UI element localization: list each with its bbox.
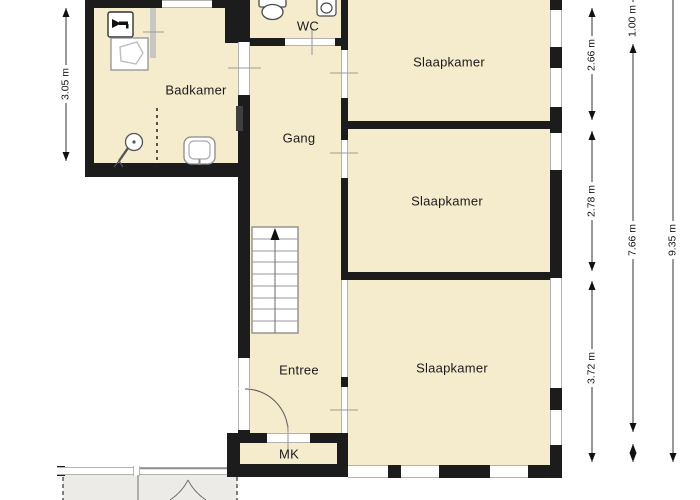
dim-label-7-66: 7.66 m — [627, 221, 640, 259]
dim-label-9-35: 9.35 m — [667, 221, 680, 259]
dim-label-1-00: 1.00 m — [627, 2, 640, 40]
dimension-arrowheads — [63, 8, 677, 462]
dim-label-left: 3.05 m — [60, 65, 73, 103]
dim-label-3-72: 3.72 m — [586, 349, 599, 387]
plan-vector-overlay — [0, 0, 700, 500]
porch-dashed-edges — [63, 477, 237, 500]
laundry-basket-icon — [111, 38, 148, 70]
dim-label-2-78: 2.78 m — [586, 182, 599, 220]
room-label-entree: Entree — [279, 363, 319, 378]
wc-washbasin-icon — [317, 0, 336, 16]
washing-machine-tap-icon — [108, 12, 133, 37]
room-label-badkamer: Badkamer — [165, 83, 226, 98]
dimension-lines — [66, 0, 673, 462]
hand-shower-icon — [114, 134, 143, 168]
toilet-icon — [259, 0, 286, 20]
porch-door-arcs — [138, 469, 227, 500]
floorplan-canvas: Badkamer WC Gang Slaapkamer Slaapkamer S… — [0, 0, 700, 500]
stairs — [252, 227, 298, 333]
room-label-slaapkamer-top: Slaapkamer — [413, 55, 485, 70]
room-label-slaapkamer-middle: Slaapkamer — [411, 194, 483, 209]
room-label-gang: Gang — [283, 131, 316, 146]
room-label-slaapkamer-bottom: Slaapkamer — [416, 361, 488, 376]
bathroom-washbasin-icon — [184, 137, 215, 165]
dim-label-2-66: 2.66 m — [586, 36, 599, 74]
entree-door-arc — [245, 389, 288, 432]
room-label-mk: MK — [279, 447, 299, 462]
room-label-wc: WC — [297, 19, 319, 34]
